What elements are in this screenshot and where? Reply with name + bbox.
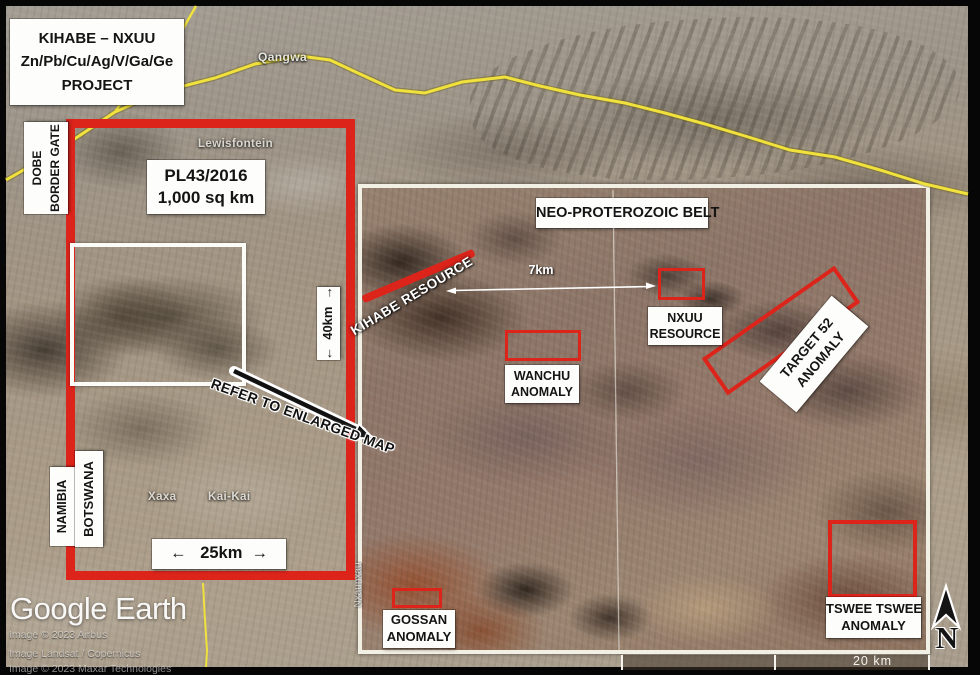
imagery-credit-3: Image © 2023 Maxar Technologies	[9, 663, 171, 675]
botswana-label: BOTSWANA	[75, 451, 103, 547]
border-gate-line: BORDER GATE	[46, 122, 64, 214]
tswee-tswee-anomaly-rect	[828, 520, 917, 598]
scale-tick-start	[621, 655, 623, 670]
project-word: PROJECT	[10, 74, 184, 97]
gossan-anomaly-label: GOSSAN ANOMALY	[383, 610, 455, 648]
wanchu-anomaly-rect	[505, 330, 581, 361]
tswee-line1: TSWEE TSWEE	[826, 601, 921, 618]
north-letter: N	[928, 620, 966, 656]
license-id: PL43/2016	[147, 165, 265, 187]
license-label-box: PL43/2016 1,000 sq km	[147, 160, 265, 214]
project-name: KIHABE – NXUU	[10, 27, 184, 50]
inset-source-rect	[70, 243, 246, 386]
place-label-qangwa: Qangwa	[258, 50, 307, 64]
gossan-line1: GOSSAN	[383, 612, 455, 629]
nxuu-line1: NXUU	[648, 310, 722, 326]
gossan-line2: ANOMALY	[383, 629, 455, 646]
distance-7km-label: 7km	[516, 263, 566, 277]
vertical-40km-text: ← 40km →	[320, 287, 337, 360]
google-earth-logo: Google Earth	[10, 591, 187, 627]
namibia-text: NAMIBIA	[54, 467, 70, 546]
horizontal-25km-label: ← 25km →	[152, 539, 286, 569]
wanchu-anomaly-label: WANCHU ANOMALY	[505, 365, 579, 403]
botswana-text: BOTSWANA	[81, 451, 98, 547]
license-area: 1,000 sq km	[147, 187, 265, 209]
wanchu-line1: WANCHU	[505, 368, 579, 384]
scale-bar: 20 km	[621, 655, 930, 670]
nxuu-line2: RESOURCE	[648, 326, 722, 342]
wanchu-line2: ANOMALY	[505, 384, 579, 400]
vertical-40km-label: ← 40km →	[317, 287, 340, 360]
imagery-credit-2: Image Landsat / Copernicus	[9, 648, 140, 660]
scale-tick-mid	[774, 655, 776, 670]
neo-proterozoic-belt-label: NEO-PROTEROZOIC BELT	[536, 198, 708, 228]
tswee-line2: ANOMALY	[826, 618, 921, 635]
imagery-credit-1: Image © 2023 Airbus	[9, 629, 107, 641]
map-figure: KIHABE RESOURCE 7km KIHABE – NXUU Zn/Pb/…	[0, 0, 980, 675]
tswee-tswee-anomaly-label: TSWEE TSWEE ANOMALY	[826, 597, 921, 638]
horizontal-25km-text: ← 25km →	[152, 543, 286, 564]
project-title-box: KIHABE – NXUU Zn/Pb/Cu/Ag/V/Ga/Ge PROJEC…	[10, 19, 184, 105]
project-elements: Zn/Pb/Cu/Ag/V/Ga/Ge	[10, 50, 184, 73]
scale-bar-label: 20 km	[853, 654, 892, 668]
nxuu-resource-label: NXUU RESOURCE	[648, 307, 722, 345]
namibia-label: NAMIBIA	[50, 467, 75, 546]
nxuu-resource-rect	[658, 268, 705, 300]
belt-text: NEO-PROTEROZOIC BELT	[536, 204, 708, 223]
scale-tick-end	[928, 655, 930, 670]
gossan-anomaly-rect	[392, 588, 442, 608]
dobe-border-gate-box: DOBE BORDER GATE	[24, 122, 68, 214]
dobe-line: DOBE	[28, 122, 46, 214]
